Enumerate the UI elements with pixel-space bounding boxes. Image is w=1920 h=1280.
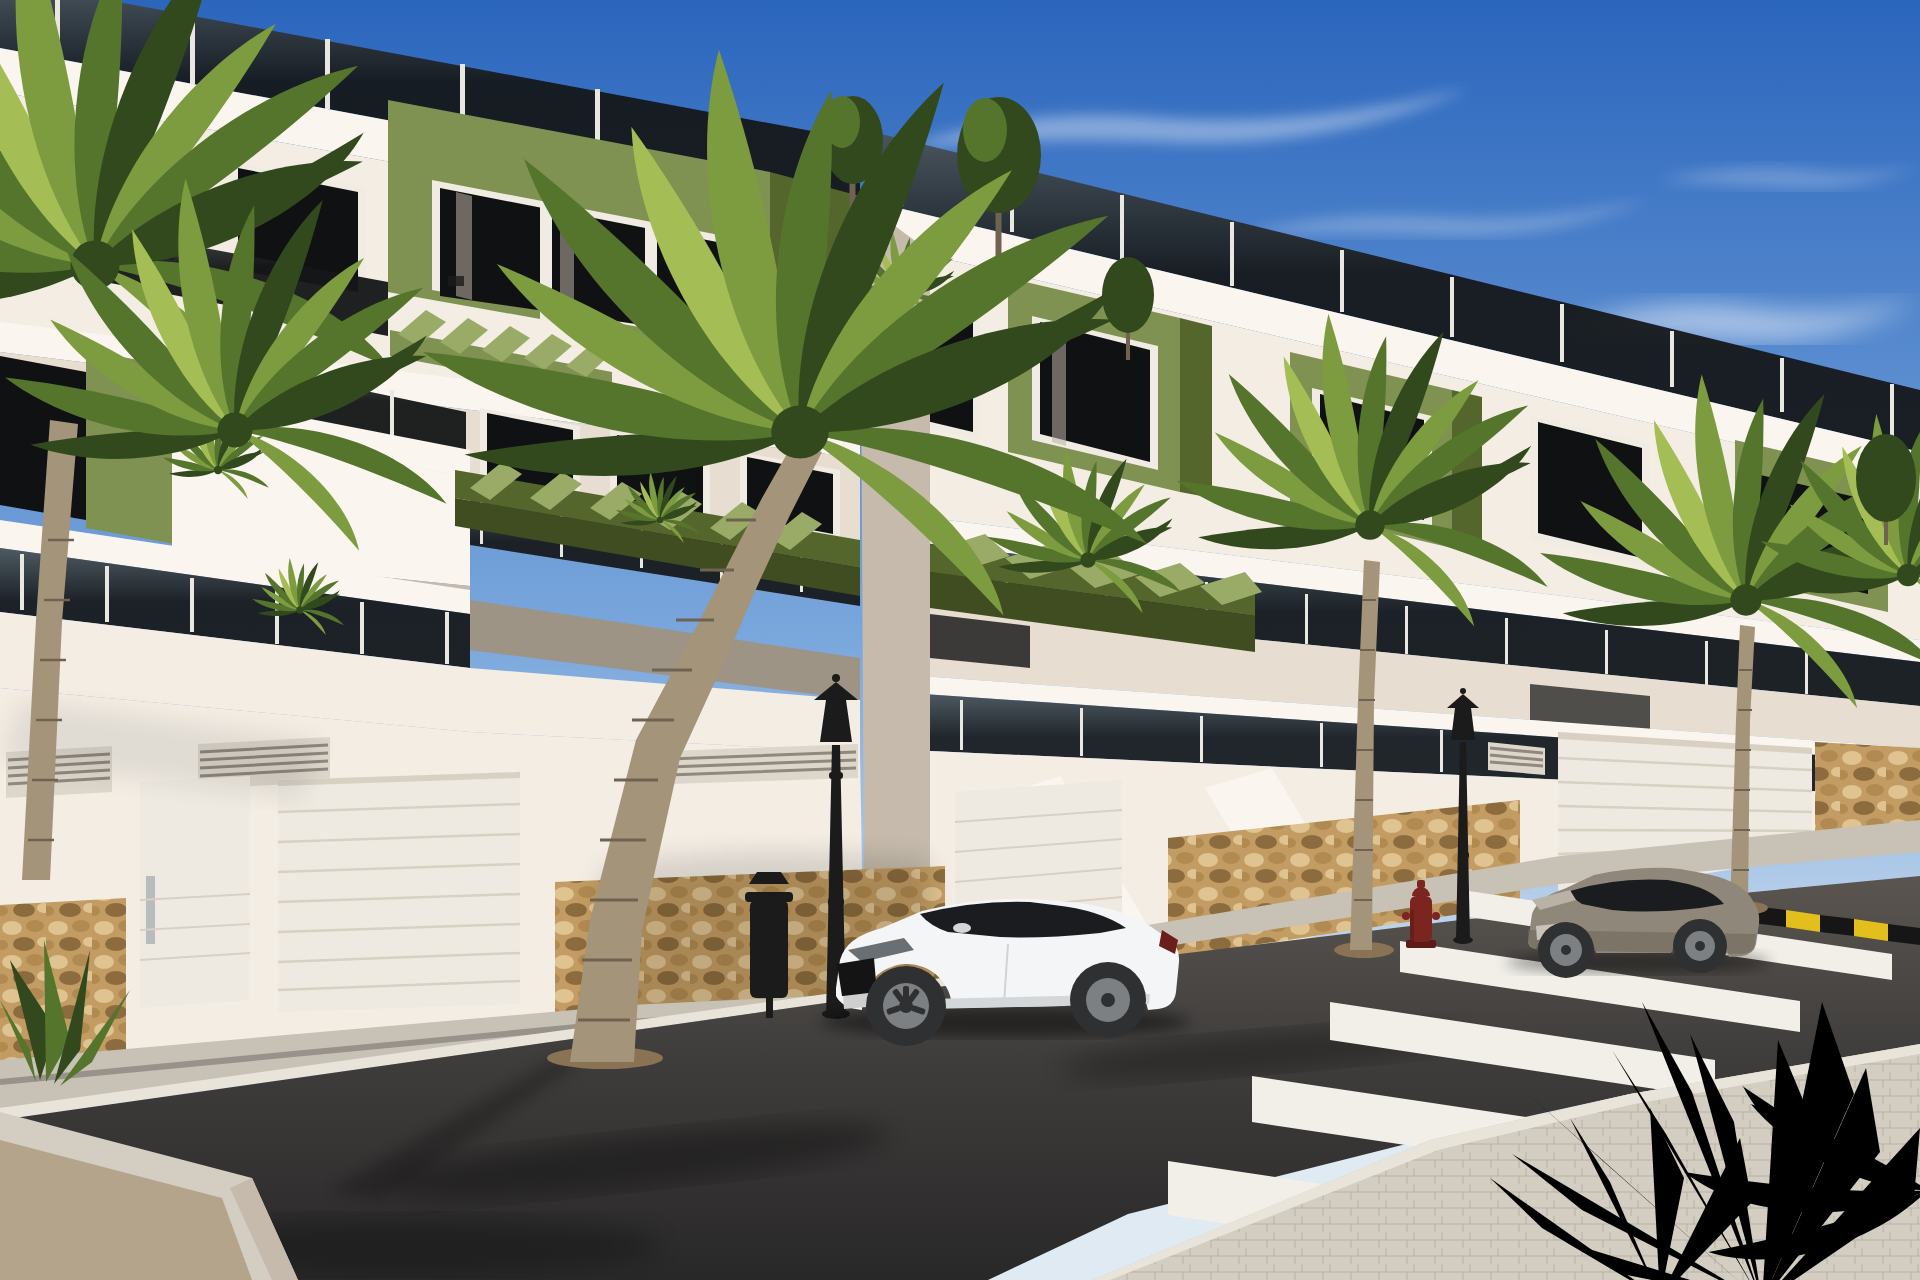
render-canvas (0, 0, 1920, 1280)
litter-bin (745, 872, 793, 1018)
street-scene (0, 0, 1920, 1280)
wall-light (448, 276, 464, 286)
pedestrian-door (140, 776, 250, 1008)
garage-door (278, 772, 520, 1012)
mirror (953, 923, 971, 933)
